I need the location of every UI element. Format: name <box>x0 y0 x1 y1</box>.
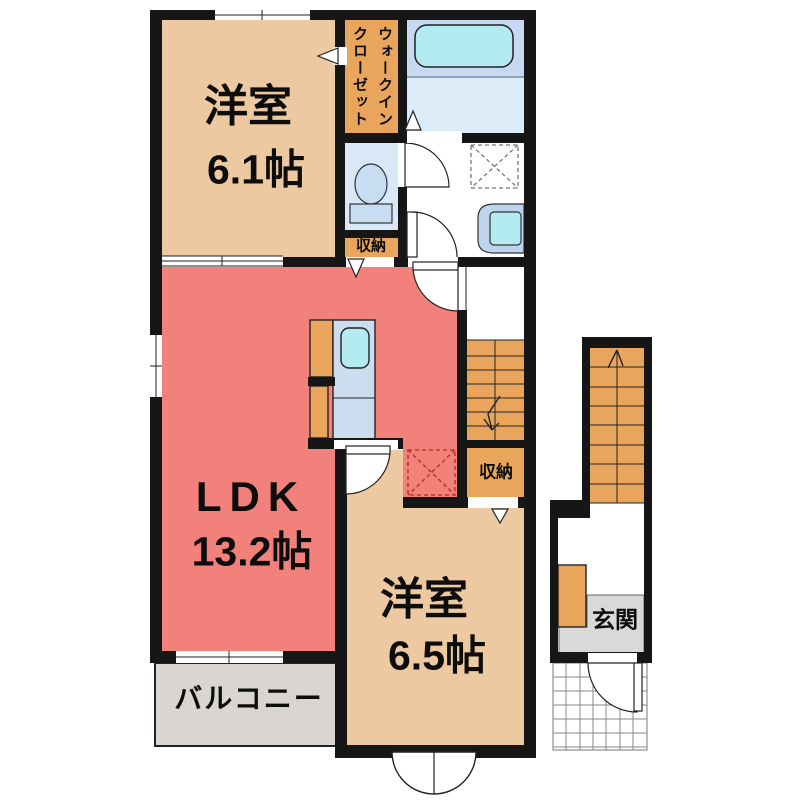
stairs-exterior <box>590 348 644 503</box>
wall-segment <box>582 337 590 518</box>
room-bath-floor <box>407 77 524 133</box>
window-ldk-balcony <box>176 651 283 663</box>
room-label-western1-name: 洋室 <box>204 85 292 129</box>
wall-segment <box>308 377 335 386</box>
wall-segment <box>582 337 652 348</box>
wall-segment <box>150 10 536 20</box>
room-western1 <box>162 20 335 257</box>
bathtub-icon <box>415 25 513 67</box>
room-ldk-fridge-nook <box>403 438 457 497</box>
shoe-cabinet <box>558 565 586 627</box>
stairs-interior <box>467 340 524 440</box>
room-hallway-landing <box>467 267 524 342</box>
walk-in-closet-line1: ウォークイン <box>372 26 397 134</box>
floor-plan: 洋室 6.1帖 LDK 13.2帖 洋室 6.5帖 バルコニー 収納 収納 玄関… <box>0 0 800 800</box>
room-label-western2-name: 洋室 <box>380 578 468 622</box>
bay-window <box>392 752 476 794</box>
wall-segment <box>335 438 347 758</box>
room-label-storage-top: 収納 <box>356 239 386 254</box>
floor-plan-graphics <box>0 0 800 800</box>
wall-segment <box>283 257 524 267</box>
room-label-ldk-size: 13.2帖 <box>192 532 313 573</box>
room-label-western1-size: 6.1帖 <box>207 150 305 191</box>
wall-segment <box>524 10 536 758</box>
washbasin-icon <box>478 204 524 253</box>
wall-segment <box>644 337 652 663</box>
wall-segment <box>550 500 558 663</box>
kitchen-cabinet-lower <box>310 386 328 438</box>
room-label-walk-in-closet: ウォークイン クローゼット <box>347 26 397 134</box>
kitchen-cabinet-upper <box>310 320 333 377</box>
window-top <box>215 10 310 20</box>
wall-segment <box>457 310 467 497</box>
room-label-entrance: 玄関 <box>592 609 638 632</box>
wall-segment <box>467 440 524 448</box>
kitchen-sink-icon <box>341 328 369 368</box>
room-label-balcony: バルコニー <box>174 685 323 713</box>
walk-in-closet-line2: クローゼット <box>347 26 372 134</box>
room-label-western2-size: 6.5帖 <box>388 636 486 677</box>
room-label-ldk-name: LDK <box>196 476 306 518</box>
room-label-storage-right: 収納 <box>479 464 513 481</box>
window-ldk-left <box>150 335 162 397</box>
sliding-opening-western1-ldk <box>162 256 283 266</box>
